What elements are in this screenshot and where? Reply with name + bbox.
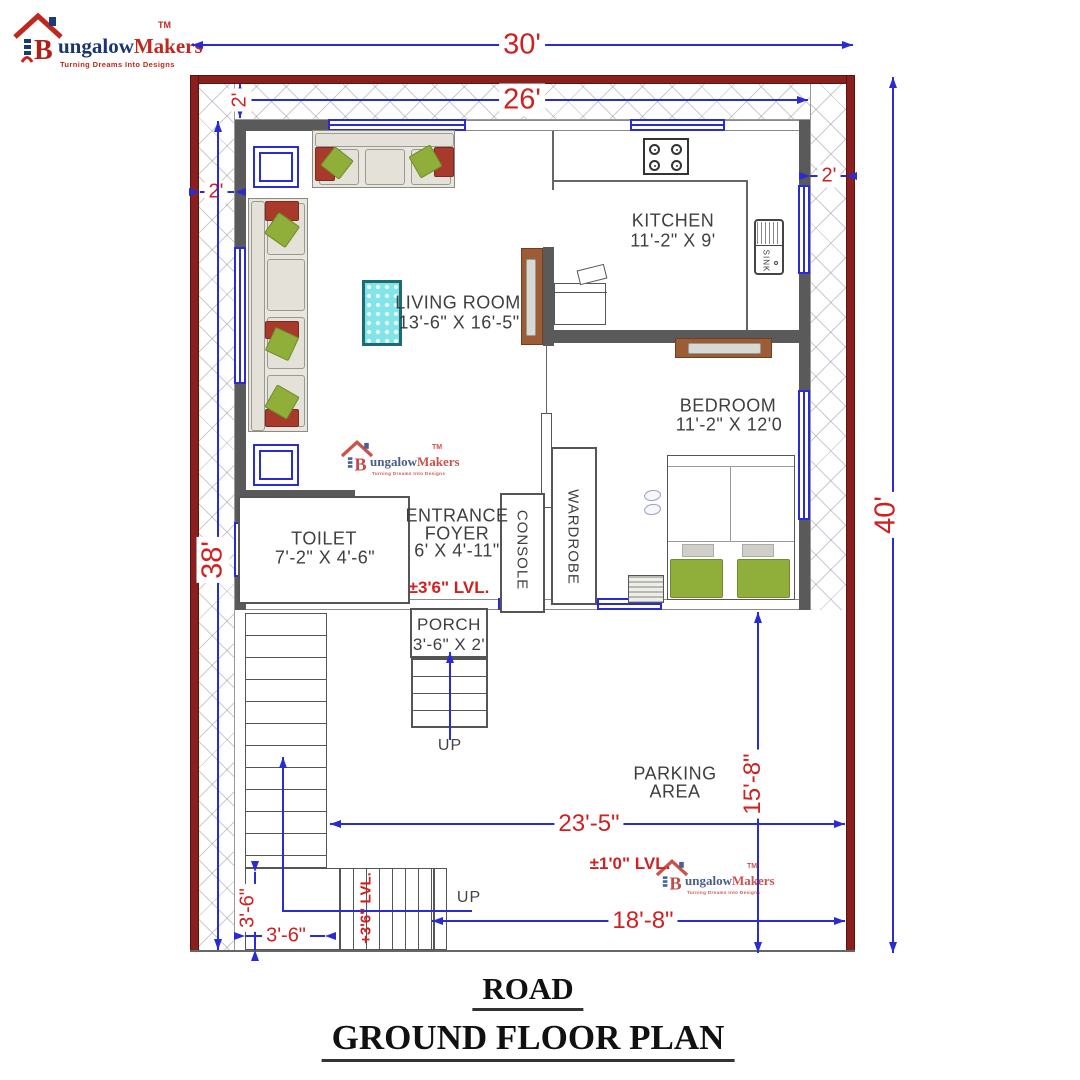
arrow-icon	[889, 942, 897, 953]
wall-seg	[799, 274, 810, 390]
wall-seg	[235, 120, 246, 247]
bedroom-label: BEDROOM	[680, 396, 777, 417]
side-table-bottom	[253, 444, 299, 486]
burner-icon	[649, 144, 660, 155]
porch-size: 3'-6" X 2'	[413, 635, 485, 655]
arrow-icon	[235, 188, 246, 196]
dim-label-3-6-h: 3'-6"	[262, 925, 310, 948]
brand-name-blue: ungalow	[58, 34, 134, 58]
tv-screen	[688, 343, 761, 354]
burner-icon	[671, 144, 682, 155]
brand-tagline: Turning Dreams Into Designs	[60, 60, 175, 69]
wardrobe-label: WARDROBE	[565, 489, 582, 585]
dim-label-3-6-v: 3'-6"	[237, 884, 260, 932]
bed	[667, 455, 795, 600]
sofa-top	[312, 130, 455, 188]
stair-up-label: UP	[457, 889, 481, 907]
window	[798, 185, 810, 274]
house-icon: B	[655, 857, 689, 893]
arrow-icon	[234, 932, 245, 940]
svg-text:B: B	[354, 454, 366, 474]
arrow-icon	[214, 121, 222, 132]
brand-logo: B ungalowMakers Turning Dreams Into Desi…	[12, 8, 187, 88]
watermark-name: ungalowMakers	[685, 873, 775, 889]
door-arch-shape	[22, 58, 32, 63]
living-room-size: 13'-6" X 16'-5"	[398, 313, 519, 334]
arrow-icon	[251, 950, 259, 961]
living-room-label: LIVING ROOM	[395, 293, 521, 314]
bed-pillow	[682, 544, 714, 557]
house-icon: B	[12, 10, 64, 64]
living-kitchen-wall	[543, 247, 554, 346]
porch-up-arrow-line	[449, 652, 451, 740]
dim-label-2ft-right: 2'	[818, 165, 841, 188]
stair-edge	[434, 868, 447, 950]
arrow-icon	[432, 917, 443, 925]
arrow-icon	[279, 757, 287, 768]
sink: SINK	[754, 219, 784, 275]
window	[234, 247, 246, 384]
wall-seg	[799, 520, 810, 610]
stair-level-label: +3'6" LVL.	[358, 872, 375, 944]
brand-name: ungalowMakers	[58, 34, 203, 59]
watermark-name: ungalowMakers	[370, 454, 460, 470]
foyer-size: 6' X 4'-11"	[414, 541, 499, 562]
toilet-size: 7'-2" X 4'-6"	[275, 548, 375, 569]
arrow-icon	[846, 172, 857, 180]
arrow-icon	[251, 861, 259, 872]
burner-icon	[649, 160, 660, 171]
door-frame-line	[546, 345, 547, 413]
arrow-icon	[889, 77, 897, 88]
plot-wall-left	[190, 75, 199, 952]
plot-wall-right	[846, 75, 855, 952]
watermark-logo-living: B ungalowMakers Turning Dreams Into Desi…	[340, 436, 460, 492]
dim-line-38ft	[217, 121, 219, 950]
dim-label-2ft-top: 2'	[229, 89, 252, 112]
arrow-icon	[754, 612, 762, 623]
window	[630, 119, 725, 131]
porch-label: PORCH	[417, 615, 481, 635]
console-label: CONSOLE	[514, 510, 531, 590]
tv-unit-living	[521, 248, 543, 345]
kitchen-counter-edge	[552, 180, 748, 182]
dim-label-2ft-left: 2'	[205, 181, 228, 204]
svg-text:B: B	[669, 873, 681, 893]
arrow-icon	[797, 96, 808, 104]
arrow-icon	[834, 917, 845, 925]
burner-icon	[671, 160, 682, 171]
kitchen-label: KITCHEN	[632, 211, 715, 232]
foyer-level-label: ±3'6" LVL.	[409, 578, 490, 598]
toilet-label: TOILET	[291, 529, 357, 550]
tv-unit-bedroom	[675, 338, 772, 358]
arrow-icon	[189, 188, 200, 196]
kitchen-size: 11'-2" X 9'	[630, 231, 715, 252]
stove	[643, 138, 689, 175]
arrow-icon	[214, 939, 222, 950]
dresser	[628, 575, 664, 603]
dim-label-26ft: 26'	[499, 84, 545, 117]
stair-direction-line	[282, 757, 284, 912]
floor-plan-canvas: B ungalowMakers Turning Dreams Into Desi…	[0, 0, 1080, 1080]
sink-label: SINK	[762, 250, 771, 273]
arrow-icon	[330, 820, 341, 828]
bedroom-size: 11'-2" X 12'0	[676, 415, 783, 436]
bed-green-cushion	[737, 559, 790, 598]
kitchen-sink-counter-edge	[746, 180, 748, 331]
dim-label-40ft: 40'	[870, 492, 903, 538]
stair-direction-line	[282, 910, 472, 912]
faucet-icon	[774, 261, 778, 265]
plan-title: GROUND FLOOR PLAN	[322, 1018, 735, 1062]
house-icon: B	[340, 438, 374, 474]
sofa-left	[248, 198, 308, 432]
setback-hatch-right	[810, 84, 846, 610]
washing-machine	[554, 283, 606, 325]
arrow-icon	[754, 942, 762, 953]
dim-label-18-8: 18'-8"	[608, 907, 677, 935]
arrow-icon	[192, 41, 203, 49]
tv-screen	[526, 259, 536, 336]
chimney-shape	[49, 17, 56, 26]
outer-stair-lower-flight	[340, 868, 434, 950]
outer-stair-long-flight	[245, 613, 327, 868]
dim-label-15-8: 15'-8"	[739, 749, 767, 818]
side-table-top	[253, 146, 299, 188]
porch-up-label: UP	[438, 737, 462, 755]
arrow-icon	[842, 41, 853, 49]
road-title: ROAD	[472, 971, 583, 1011]
logo-initial: B	[34, 35, 53, 64]
bed-pillow	[742, 544, 774, 557]
window	[798, 390, 810, 520]
watermark-logo-parking: B ungalowMakers Turning Dreams Into Desi…	[655, 855, 775, 911]
parking-label-2: AREA	[649, 782, 700, 803]
bed-green-cushion	[670, 559, 723, 598]
dim-label-38ft: 38'	[197, 537, 230, 583]
dim-label-23-5: 23'-5"	[554, 810, 623, 838]
dim-label-30ft: 30'	[499, 29, 545, 62]
brand-tm: TM	[158, 20, 171, 30]
arrow-icon	[325, 932, 336, 940]
arrow-icon	[799, 172, 810, 180]
arrow-icon	[834, 820, 845, 828]
